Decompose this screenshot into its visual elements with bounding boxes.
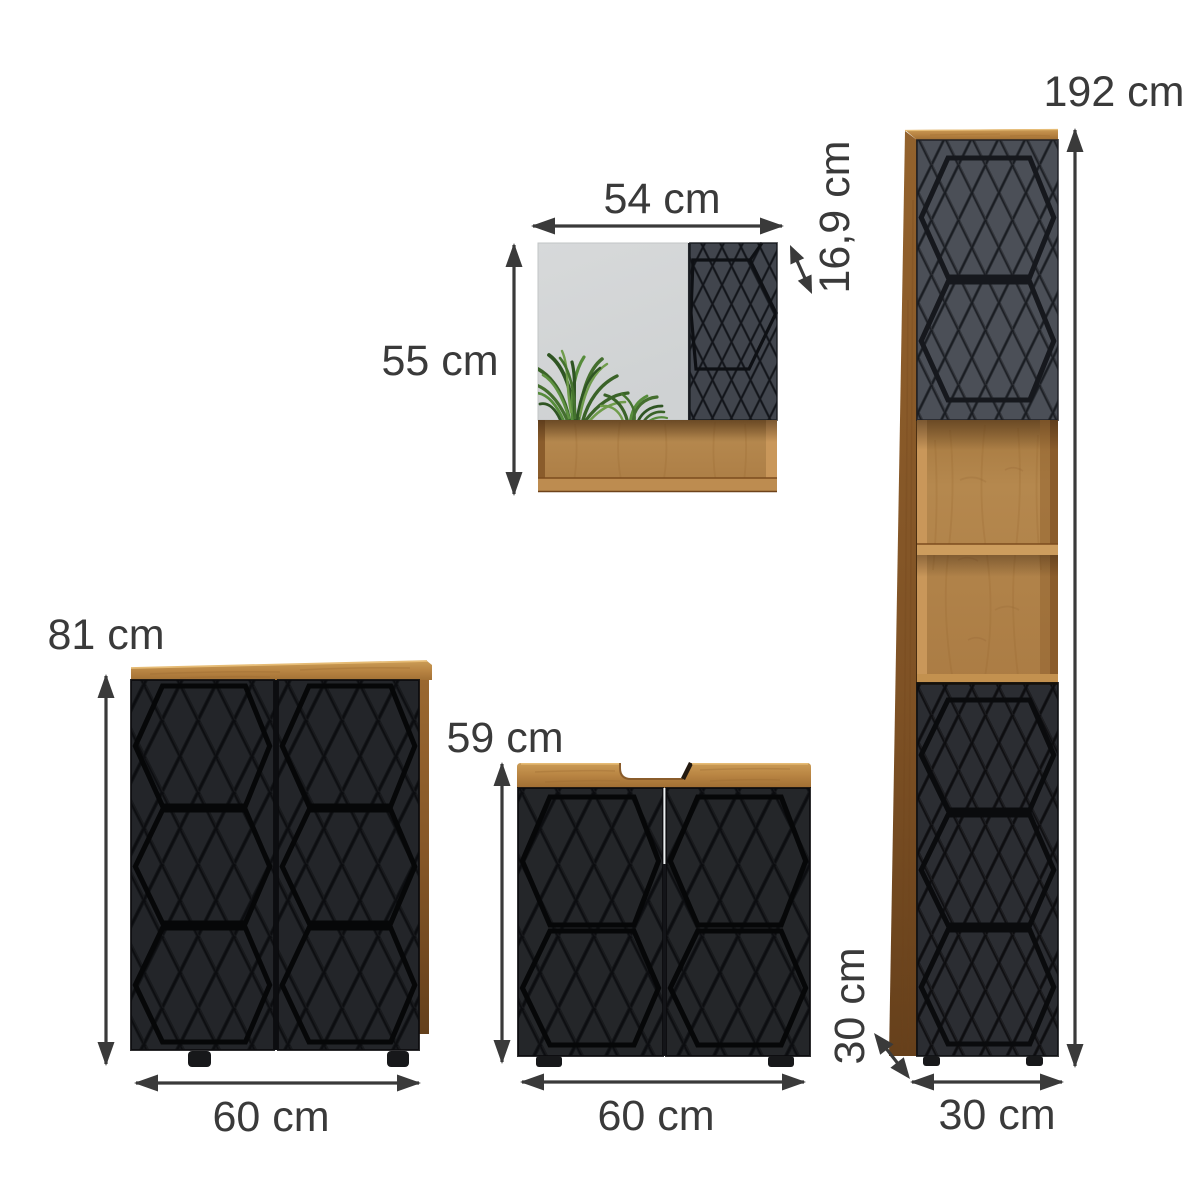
svg-text:60 cm: 60 cm (212, 1093, 329, 1141)
svg-text:59 cm: 59 cm (446, 714, 563, 762)
svg-text:192 cm: 192 cm (1043, 68, 1184, 116)
svg-text:81 cm: 81 cm (47, 611, 164, 659)
svg-text:55 cm: 55 cm (381, 337, 498, 385)
svg-text:16,9 cm: 16,9 cm (811, 141, 859, 294)
svg-text:54 cm: 54 cm (603, 175, 720, 223)
svg-text:60 cm: 60 cm (597, 1092, 714, 1140)
svg-text:30 cm: 30 cm (826, 947, 874, 1064)
svg-text:30 cm: 30 cm (938, 1091, 1055, 1139)
